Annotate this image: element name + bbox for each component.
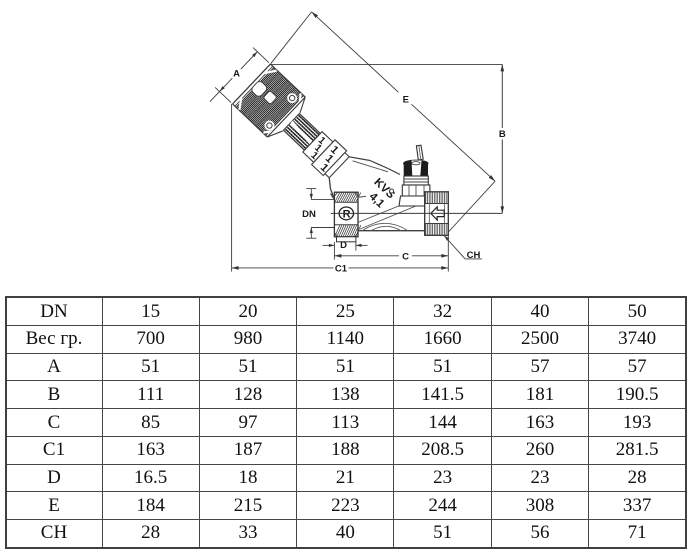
- svg-text:D: D: [340, 240, 347, 251]
- svg-text:DN: DN: [302, 209, 316, 220]
- svg-text:C1: C1: [335, 263, 348, 274]
- svg-text:E: E: [403, 95, 409, 106]
- svg-text:CH: CH: [467, 250, 481, 261]
- svg-text:C: C: [402, 251, 409, 262]
- svg-text:A: A: [233, 69, 240, 80]
- svg-text:B: B: [499, 129, 506, 140]
- svg-text:R: R: [343, 209, 351, 221]
